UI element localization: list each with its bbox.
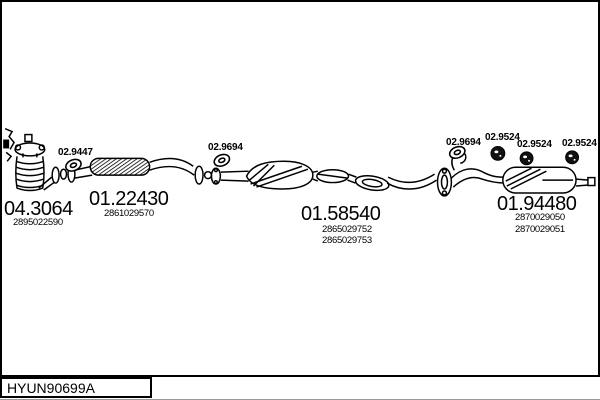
fitting-label-gasket-rear[interactable]: 02.9694 [446, 138, 481, 148]
part-number-front-pipe[interactable]: 01.22430 [89, 189, 168, 209]
oem-number-catalyst: 2895022590 [13, 218, 63, 228]
part-number-catalyst[interactable]: 04.3064 [4, 199, 73, 219]
oem-number-rear-silencer-b: 2870029051 [515, 225, 565, 235]
diagram-code: HYUN90699A [7, 380, 95, 396]
fitting-label-hanger-b[interactable]: 02.9524 [517, 140, 552, 150]
fitting-label-gasket-mid[interactable]: 02.9694 [208, 143, 243, 153]
oem-number-rear-silencer-a: 2870029050 [515, 213, 565, 223]
rear-flange-drawing [438, 168, 452, 196]
diagram-canvas: 02.9447 02.9694 02.9694 02.9524 02.9524 … [0, 0, 600, 377]
part-number-centre-silencer[interactable]: 01.58540 [301, 204, 380, 224]
oem-number-centre-silencer-b: 2865029753 [322, 236, 372, 246]
gasket-icon [64, 157, 83, 173]
oem-number-front-pipe: 2861029570 [104, 209, 154, 219]
rubber-hanger-icon [520, 152, 533, 165]
rubber-hanger-icon [491, 146, 505, 160]
part-number-rear-silencer[interactable]: 01.94480 [497, 194, 576, 214]
fitting-label-hanger-c[interactable]: 02.9524 [562, 139, 597, 149]
exhaust-parts-diagram-page: { "diagram_code": "HYUN90699A", "colors"… [0, 0, 600, 400]
fitting-label-gasket-front[interactable]: 02.9447 [58, 148, 93, 158]
centre-silencer-drawing [221, 161, 437, 192]
oem-number-centre-silencer-a: 2865029752 [322, 225, 372, 235]
diagram-code-box: HYUN90699A [0, 377, 152, 398]
gasket-icon [212, 152, 231, 168]
front-pipe-drawing [74, 158, 220, 184]
fitting-label-hanger-a[interactable]: 02.9524 [485, 133, 520, 143]
rubber-hanger-icon [566, 151, 579, 164]
